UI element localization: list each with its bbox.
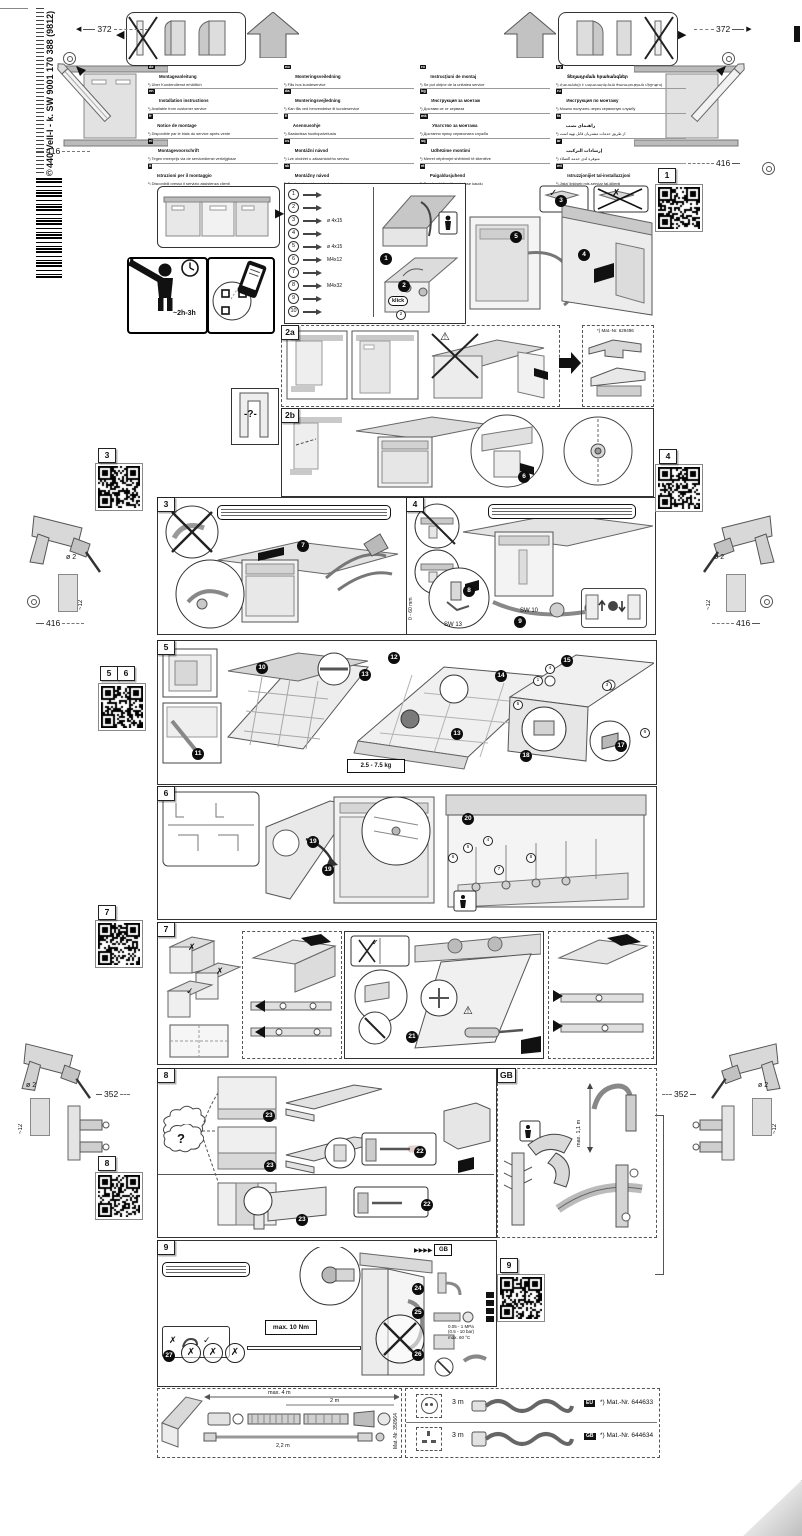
language-item: sk Montážny návod ¹) Dostupné u zákazníc… (284, 163, 414, 185)
part-number-circle: 4 (288, 228, 299, 239)
step-4-marker: 4 (578, 249, 590, 261)
language-note: ¹) متوفرة لدى خدمة العملاء (556, 157, 686, 161)
part-ref-4: 4 (545, 664, 555, 674)
qr-code-5-6 (98, 683, 146, 731)
language-title: Installation instructions (159, 98, 209, 103)
language-note: ¹) Se pot obţine de la unitatea service (420, 83, 550, 87)
language-title: إرشادات التركيب (566, 148, 602, 153)
language-note: ¹) Можно получить через сервисную службу (556, 107, 686, 111)
part-size-label: M4x12 (327, 257, 342, 263)
section-8-divider (158, 1174, 494, 1175)
dim-416-right-value: 416 (716, 158, 730, 168)
section-8-box: 8 (157, 1068, 497, 1238)
adjust-range-label: 0 - 60 mm (408, 576, 414, 620)
part-size-label: M4x32 (327, 283, 342, 289)
drill-diameter-right-label: ø 2 (714, 554, 724, 561)
language-code-badge: fi (284, 114, 288, 119)
language-item: fa راهنمای نصب ¹) از طریق خدمات مشتریان … (556, 113, 686, 138)
qr-code-8 (95, 1172, 143, 1220)
step-8-marker: 8 (463, 585, 475, 597)
language-title: Инструкция за монтаж (431, 98, 480, 103)
qr-code-4 (655, 464, 703, 512)
cabinet-variants-sketch (162, 929, 242, 1059)
language-item: en Installation instructions ¹) Availabl… (148, 88, 278, 113)
language-item: de Montageanleitung ¹) Über Kundendienst… (148, 64, 278, 88)
dim-416-right: 416 (688, 158, 758, 168)
language-item: cs Montážní návod ¹) Lze obdržet u zákaz… (284, 138, 414, 163)
power-cord-box: 3 m EU *) Mat.-Nr. 644633 3 m GB *) Mat.… (405, 1388, 660, 1458)
step-12-marker: 12 (388, 652, 400, 664)
language-title: Istruzioni per il montaggio (157, 173, 212, 178)
part-number-circle: 7 (288, 267, 299, 278)
cross-mark: ✗ (216, 966, 224, 977)
dim-416-left-lower: 416 (36, 618, 100, 628)
gb-socket-icon (416, 1427, 442, 1451)
remove-disc-note-box (162, 1262, 250, 1277)
part-hardware-icon (301, 217, 325, 225)
parts-list-item: 1 (288, 188, 372, 201)
drill-depth-label: ~12 (772, 1104, 778, 1134)
power-cord-sketch (470, 1428, 574, 1450)
section-label-6: 6 (157, 786, 175, 801)
parts-list-item: 10 (288, 305, 372, 318)
hose-max-length-label: max. 4 m (268, 1390, 291, 1397)
qr-label-1: 1 (658, 168, 676, 183)
country-badge-column (486, 1292, 494, 1322)
hose-lower-length-label: 2,2 m (276, 1443, 290, 1450)
language-code-badge: et (420, 164, 425, 169)
language-code-badge: bg (420, 89, 427, 94)
section-label-2a: 2a (281, 325, 299, 340)
step-25-marker: 25 (412, 1307, 424, 1319)
water-pressure-spec: 0.05 - 1 MPa (0.5 - 10 bar) max. 60 °C (448, 1324, 494, 1340)
part-number-circle: 8 (288, 280, 299, 291)
step-6-marker: 6 (518, 471, 530, 483)
section-label-7: 7 (157, 922, 175, 937)
language-item: ru Инструкция по монтажу ¹) Можно получи… (556, 88, 686, 113)
part-hardware-icon (301, 269, 325, 277)
step-17-marker: 17 (615, 740, 627, 752)
cord-length-label: 3 m (452, 1399, 464, 1406)
language-title: Montážní návod (295, 148, 328, 153)
country-badge (486, 1300, 494, 1306)
qr-code-7 (95, 920, 143, 968)
qr-code-1 (655, 184, 703, 232)
drill-hole-sketch-right (726, 574, 746, 612)
part-hardware-icon (301, 243, 325, 251)
mounting-bracket-box: *) Mat.-Nr. 629496 (582, 325, 654, 407)
step-1-marker: 1 (380, 253, 392, 265)
language-item: sq Udhëzime montimi ¹) Merret nëpërmjet … (420, 138, 550, 163)
door-panel-prep-sketch (158, 641, 654, 781)
installer-icon (129, 259, 201, 311)
language-code-badge: fa (556, 114, 561, 119)
part-size-label: ø 4x15 (327, 244, 342, 250)
drill-diameter-left-label: ø 2 (66, 554, 76, 561)
brace-note-line (492, 515, 632, 517)
language-item: ro Instrucţiuni de montaj ¹) Se pot obţi… (420, 64, 550, 88)
copyright-symbol: © (46, 168, 53, 178)
qr-label-5: 5 (100, 666, 118, 681)
step-22-marker: 22 (421, 1199, 433, 1211)
language-code-badge: ru (556, 89, 562, 94)
language-code-badge: sq (420, 139, 427, 144)
dim-416-left-value: 416 (46, 146, 60, 156)
language-note: ¹) Fås hos kundeservice (284, 83, 414, 87)
parts-list-item: 6 M4x12 (288, 253, 372, 266)
language-note: ¹) Über Kundendienst erhältlich (148, 83, 278, 87)
block-arrow-up-left-icon (247, 12, 299, 58)
warning-icon: ⚠ (463, 1004, 473, 1017)
bracket-part-number: *) Mat.-Nr. 629496 (597, 328, 634, 333)
step-21-marker: 21 (406, 1031, 418, 1043)
language-code-badge: cs (284, 139, 290, 144)
install-time-label: ~2h-3h (173, 309, 196, 318)
cord-part-number: *) Mat.-Nr. 644633 (600, 1399, 653, 1406)
arrow-right-icon: ▶ (746, 26, 751, 33)
cord-part-number: *) Mat.-Nr. 644634 (600, 1432, 653, 1439)
language-code-badge: fr (148, 114, 153, 119)
language-note: ¹) Merret nëpërmjet shërbimit të klientë… (420, 157, 550, 161)
language-title: Paigaldusjuhend (430, 173, 465, 178)
language-note: ¹) Disponible par le biais du service ap… (148, 132, 278, 136)
hose-segment-length-label: 2 m (330, 1398, 339, 1405)
klick-label: klick (388, 296, 408, 306)
parts-list-item: 5 ø 4x15 (288, 240, 372, 253)
language-title: Инструкция по монтажу (566, 98, 618, 103)
language-list-column-4: hy Տեղադրման հրահանգներ ¹) Հասանելի է սպ… (556, 64, 686, 185)
check-mark: ✓ (186, 986, 194, 997)
qr-code-3 (95, 463, 143, 511)
part-size-label: ø 4x15 (327, 218, 342, 224)
language-title: Упатство за монтажа (432, 123, 477, 128)
phone-scan-icon (209, 259, 268, 327)
height-adjust-icon-box (581, 588, 647, 628)
kitchen-overview-sketch (158, 187, 276, 244)
part-hardware-icon (301, 308, 325, 316)
step-5-marker: 5 (510, 231, 522, 243)
step-7-marker: 7 (297, 540, 309, 552)
section-label-4: 4 (406, 497, 424, 512)
warning-icon: ⚠ (440, 330, 450, 343)
unknown-niche-box: -?- (231, 388, 279, 445)
parts-list-item: 2 (288, 201, 372, 214)
dim-372-right: 372 ▶ (694, 24, 786, 34)
part-ref-2: 2 (396, 310, 406, 320)
language-item: nl Montagevoorschrift ¹) Tegen meerprijs… (148, 138, 278, 163)
language-item: bg Инструкция за монтаж ¹) Доставя се от… (420, 88, 550, 113)
language-title: Montageanleitung (159, 74, 197, 79)
step-19-marker: 19 (307, 836, 319, 848)
dim-416-right-lower: 416 (712, 618, 776, 628)
corner-mark-top-left (0, 8, 28, 9)
language-code-badge: ro (420, 65, 426, 70)
dim-352-right-value: 352 (674, 1089, 688, 1099)
drill-target-icon (27, 595, 40, 608)
language-item: no Monteringsveiledning ¹) Fås hos kunde… (284, 64, 414, 88)
language-code-badge: it (148, 164, 152, 169)
part-number-circle: 1 (288, 189, 299, 200)
language-title: Asennusohje (293, 123, 321, 128)
rail-option-box-left (242, 931, 342, 1059)
language-title: Istruzzjonijiet tal-installazzjoni (567, 173, 630, 178)
part-ref-7: 7 (494, 865, 504, 875)
section-2b-box: 2b (281, 408, 654, 497)
screw-fix-box: ⚠ (344, 931, 544, 1059)
step-23-marker: 23 (263, 1110, 275, 1122)
part-number-circle: 2 (288, 202, 299, 213)
language-item: da Monteringsvejledning ¹) Kan fås ved h… (284, 88, 414, 113)
remove-disc-line (166, 1273, 246, 1275)
door-panel-types-box-left (126, 12, 246, 66)
part-hardware-icon (301, 230, 325, 238)
dim-372-left-value: 372 (97, 24, 111, 34)
installer-time-box: ~2h-3h (127, 257, 208, 334)
language-code-badge: ar (556, 139, 562, 144)
leak-check-box (247, 1346, 361, 1350)
parts-list-item: 7 (288, 266, 372, 279)
language-code-badge: no (284, 65, 291, 70)
cord-row-eu: 3 m EU *) Mat.-Nr. 644633 (412, 1393, 655, 1419)
door-panel-types-sketch (559, 13, 675, 62)
step-9-marker: 9 (514, 616, 526, 628)
drill-hole-sketch (30, 1098, 50, 1136)
wall-bracket-sketch-right (692, 1102, 740, 1164)
section-label-9: 9 (157, 1240, 175, 1255)
page-corner-fold (742, 1480, 802, 1536)
part-ref-5: 5 (513, 700, 523, 710)
qr-label-4: 4 (659, 449, 677, 464)
step-20-marker: 20 (462, 813, 474, 825)
country-badge (486, 1308, 494, 1314)
no-tool-icon: ✗ (181, 1343, 201, 1363)
language-title: Montagevoorschrift (158, 148, 199, 153)
language-note: ¹) Lze obdržet u zákaznického servisu (284, 157, 414, 161)
language-code-badge: mk (420, 114, 428, 119)
dim-416-right-lower-value: 416 (736, 618, 750, 628)
hose-part-number: Mat.-Nr. 350564 (393, 1397, 399, 1449)
screw-fix-sketch (345, 932, 541, 1056)
cross-mark: ✗ (612, 188, 620, 199)
cord-region-badge: EU (584, 1400, 595, 1407)
section-label-8: 8 (157, 1068, 175, 1083)
block-arrow-up-right-icon (504, 12, 556, 58)
language-note: ¹) Tegen meerprijs via de servicedienst … (148, 157, 278, 161)
qr-label-3: 3 (98, 448, 116, 463)
part-hardware-icon (301, 204, 325, 212)
part-number-circle: 3 (288, 215, 299, 226)
height-adjust-icon (582, 589, 643, 624)
part-hardware-icon (301, 295, 325, 303)
language-code-badge: sk (284, 164, 290, 169)
step-11-marker: 11 (192, 748, 204, 760)
eu-socket-icon (416, 1394, 442, 1418)
language-note: ¹) Disponibili presso il servizio assist… (148, 182, 278, 185)
section-label-2b: 2b (281, 408, 299, 423)
step-27-marker: 27 (163, 1350, 175, 1362)
question-dimension-label: -?- (244, 409, 257, 421)
triangle-right-icon: ▶ (275, 206, 284, 220)
section-label-5: 5 (157, 640, 175, 655)
arrow-left-icon: ◀ (76, 26, 81, 33)
language-item: hy Տեղադրման հրահանգներ ¹) Հասանելի է սպ… (556, 64, 686, 88)
step-26-marker: 26 (412, 1349, 424, 1361)
wrench-size-10-label: SW 10 (520, 608, 538, 615)
section-7-box: 7 (157, 922, 657, 1065)
part-ref-1: 1 (533, 676, 543, 686)
barcode (36, 178, 62, 278)
plinth-rail-sketch (158, 1069, 494, 1234)
language-title: Monteringsvejledning (295, 98, 340, 103)
language-list-column-1: de Montageanleitung ¹) Über Kundendienst… (148, 64, 278, 185)
dim-352-right: 352 (662, 1089, 706, 1099)
step-23-marker: 23 (296, 1214, 308, 1226)
door-mount-sketch (158, 787, 654, 916)
gb-drain-box: GB max. 1,1 m (497, 1068, 657, 1238)
niche-types-sketch (282, 326, 557, 404)
part-hardware-icon (301, 191, 325, 199)
language-note: ¹) Доставя се от сервиза (420, 107, 550, 111)
cord-row-divider (406, 1422, 657, 1423)
part-hardware-icon (301, 282, 325, 290)
wrench-size-13-label: SW 13 (444, 622, 462, 629)
part-hardware-icon (301, 256, 325, 264)
cord-row-gb: 3 m GB *) Mat.-Nr. 644634 (412, 1426, 655, 1452)
language-code-badge: mt (556, 164, 563, 169)
drill-icon-lower-left (18, 1038, 94, 1104)
pinch-warning-box (217, 505, 391, 520)
question-cloud: ? (160, 1124, 204, 1158)
drill-depth-right-label: ~12 (706, 580, 712, 610)
torque-badge: max. 10 Nm (265, 1320, 317, 1335)
margin-bracket-mark (655, 1115, 664, 1275)
scan-qr-phone-box (207, 257, 275, 334)
step-14-marker: 14 (495, 670, 507, 682)
step-13-marker: 13 (359, 669, 371, 681)
qr-label-9: 9 (500, 1258, 518, 1273)
part-number-circle: 6 (288, 254, 299, 265)
dim-372-right-value: 372 (716, 24, 730, 34)
language-item: mk Упатство за монтажа ¹) Достапно преку… (420, 113, 550, 138)
dim-416-left: 416 (36, 146, 106, 156)
part-ref-8: 8 (526, 853, 536, 863)
language-code-badge: nl (148, 139, 153, 144)
qr-code-9 (497, 1274, 545, 1322)
gb-sequence: ▶▶▶▶ GB (414, 1244, 452, 1256)
step-22-marker: 22 (414, 1146, 426, 1158)
triangle-left-icon: ◀ (116, 28, 124, 41)
language-title: Տեղադրման հրահանգներ (567, 74, 628, 79)
section-label-gb: GB (497, 1068, 516, 1083)
drill-target-icon (760, 595, 773, 608)
language-note: ¹) Достапно преку сервисната служба (420, 132, 550, 136)
drill-target-icon (63, 52, 76, 65)
language-title: Udhëzime montimi (431, 148, 470, 153)
language-item: et Paigaldusjuhend ¹) Saadaval kliendite… (420, 163, 550, 185)
kitchen-overview-box (157, 186, 280, 248)
part-ref-6: 6 (448, 853, 458, 863)
no-tool-icon: ✗ (225, 1343, 245, 1363)
drill-target-icon (722, 52, 735, 65)
part-ref-3: 3 (602, 681, 612, 691)
door-panel-types-box-right (558, 12, 678, 66)
drill-depth-left-label: ~12 (78, 580, 84, 610)
door-panel-types-sketch (127, 13, 243, 62)
rail-option-sketch (243, 932, 339, 1056)
parts-list-item: 3 ø 4x15 (288, 214, 372, 227)
part-number-circle: 5 (288, 241, 299, 252)
step-19-marker: 19 (322, 864, 334, 876)
cross-mark: ✗ (169, 1335, 177, 1346)
water-temp: max. 60 °C (448, 1335, 494, 1340)
drill-target-icon (762, 162, 775, 175)
step-24-marker: 24 (412, 1283, 424, 1295)
language-note: ¹) از طریق خدمات مشتریان قابل تهیه است (556, 132, 686, 136)
drill-hole-sketch-left (58, 574, 78, 612)
language-code-badge: hy (556, 65, 563, 70)
parts-list-item: 9 (288, 292, 372, 305)
language-code-badge: de (148, 65, 155, 70)
part-number-circle: 9 (288, 293, 299, 304)
dim-352-left: 352 (96, 1089, 140, 1099)
qr-label-8: 8 (98, 1156, 116, 1171)
step-13-marker: 13 (451, 728, 463, 740)
language-item: fi Asennusohje ¹) Saatavissa huoltopalve… (284, 113, 414, 138)
section-label-3: 3 (157, 497, 175, 512)
language-code-badge: da (284, 89, 291, 94)
parts-list-box: 1 2 3 ø 4x15 (284, 183, 466, 324)
edge-tick-right (794, 26, 800, 42)
wall-bracket-sketch-left (62, 1102, 110, 1164)
parts-list: 1 2 3 ø 4x15 (288, 188, 372, 318)
language-title: Instrucţiuni de montaj (430, 74, 476, 79)
rail-option-box-right (548, 931, 654, 1059)
bracket-sketch (583, 334, 651, 402)
step-18-marker: 18 (520, 750, 532, 762)
step-23-marker: 23 (264, 1160, 276, 1172)
drill-icon-lower-right (708, 1038, 784, 1104)
part-ref-4: 4 (483, 836, 493, 846)
language-item: fr Notice de montage ¹) Disponible par l… (148, 113, 278, 138)
language-note: ¹) Հասանելի է սպասարկման ծառայության միջ… (556, 83, 686, 87)
check-mark: ✓ (203, 1335, 211, 1346)
language-title: Notice de montage (157, 123, 196, 128)
question-cloud-mark: ? (177, 1131, 185, 1147)
step-2-marker: 2 (398, 280, 410, 292)
section-2a-box: 2a ⚠ (281, 325, 560, 407)
hose-extension-box: max. 4 m 2 m 2,2 m Mat.-Nr. 350564 (157, 1388, 402, 1458)
dim-352-left-value: 352 (104, 1089, 118, 1099)
part-ref-5: 5 (463, 843, 473, 853)
step-15-marker: 15 (561, 655, 573, 667)
dim-416-left-lower-value: 416 (46, 618, 60, 628)
cord-region-badge: GB (584, 1433, 596, 1440)
gb-sequence-label: GB (434, 1244, 452, 1256)
section-6-box: 6 (157, 786, 657, 920)
rail-option-sketch (549, 932, 651, 1056)
cord-length-label: 3 m (452, 1432, 464, 1439)
language-list-column-3: ro Instrucţiuni de montaj ¹) Se pot obţi… (420, 64, 550, 185)
cross-mark: ✗ (188, 942, 196, 953)
language-note: ¹) Available from customer service (148, 107, 278, 111)
language-item: ar إرشادات التركيب ¹) متوفرة لدى خدمة ال… (556, 138, 686, 163)
drill-diameter-label: ø 2 (758, 1082, 768, 1089)
part-number-circle: 10 (288, 306, 299, 317)
pinch-warning-line (221, 516, 387, 518)
qr-label-7: 7 (98, 905, 116, 920)
country-badge (486, 1292, 494, 1298)
step-3-marker: 3 (555, 195, 567, 207)
